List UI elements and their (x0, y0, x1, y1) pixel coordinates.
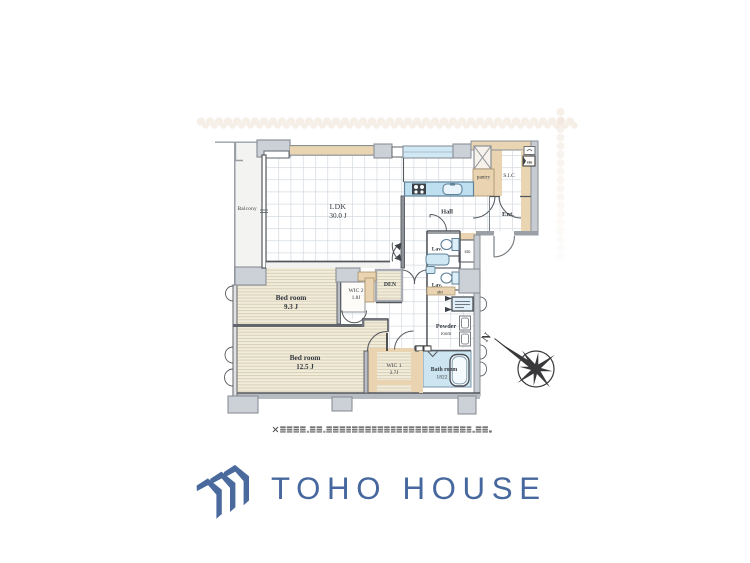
svg-text:DEN: DEN (384, 282, 397, 288)
svg-text:WIC 1: WIC 1 (386, 363, 401, 369)
svg-text:sto: sto (464, 249, 470, 255)
svg-text:1.8J: 1.8J (352, 295, 361, 301)
svg-text:Lav.: Lav. (432, 283, 443, 289)
svg-text:LDK: LDK (330, 202, 347, 211)
svg-text:1822: 1822 (436, 375, 447, 381)
svg-text:room: room (441, 332, 452, 337)
svg-text:12.5 J: 12.5 J (296, 363, 314, 371)
svg-text:Bath room: Bath room (431, 367, 458, 373)
svg-text:pantry: pantry (477, 175, 491, 181)
svg-text:Hall: Hall (441, 209, 453, 216)
svg-text:Balcony: Balcony (238, 206, 257, 212)
svg-text:Ent.: Ent. (502, 211, 514, 218)
svg-text:Lav.: Lav. (432, 247, 443, 253)
svg-text:2.7J: 2.7J (390, 370, 399, 376)
svg-text:sto: sto (527, 160, 533, 165)
svg-text:9.3 J: 9.3 J (284, 303, 299, 311)
svg-text:Bed room: Bed room (276, 293, 308, 302)
svg-text:sto: sto (437, 291, 443, 296)
svg-text:Powder: Powder (436, 323, 457, 330)
svg-text:S.I.C: S.I.C (503, 173, 515, 179)
svg-text:30.0 J: 30.0 J (329, 212, 346, 220)
svg-text:TOHO HOUSE: TOHO HOUSE (271, 471, 540, 506)
svg-text:Bed room: Bed room (290, 353, 322, 362)
svg-text:WIC 2: WIC 2 (348, 288, 363, 294)
svg-text:N: N (479, 331, 493, 345)
